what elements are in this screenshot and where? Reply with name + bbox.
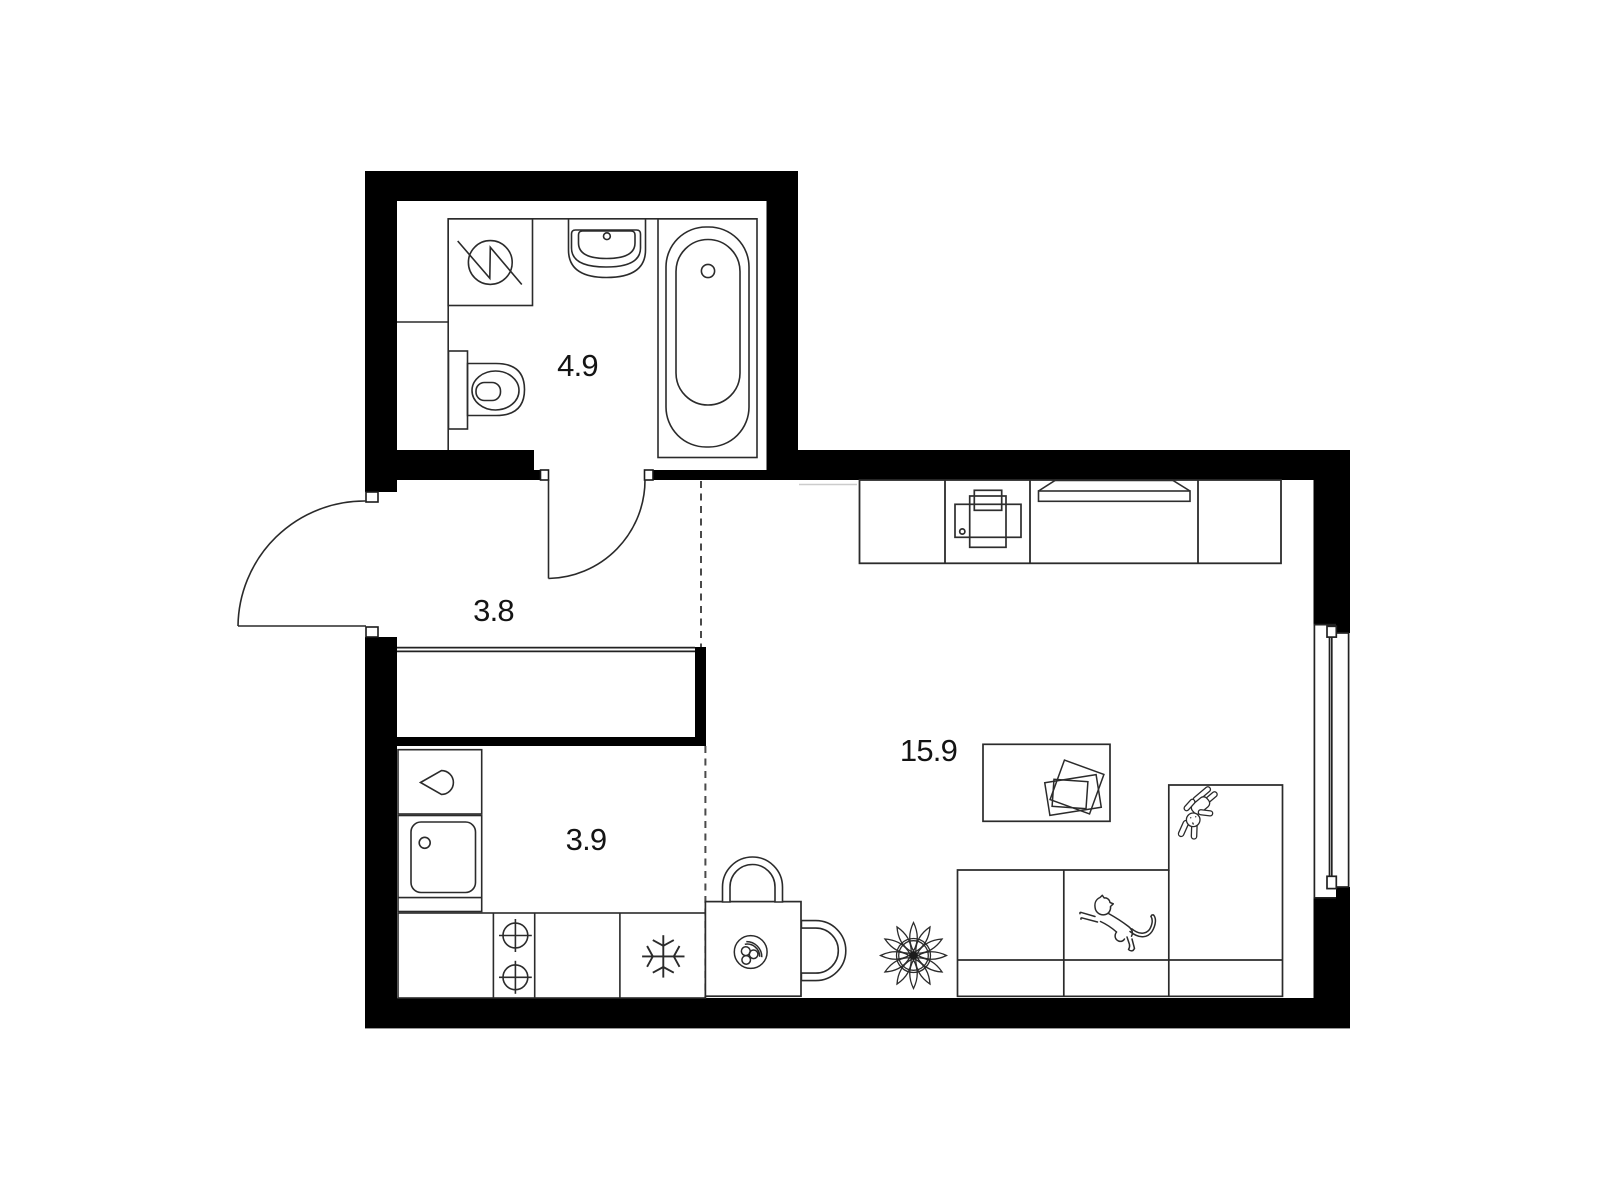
svg-text:3.9: 3.9: [566, 822, 607, 857]
svg-text:3.8: 3.8: [473, 593, 514, 628]
svg-text:15.9: 15.9: [900, 733, 957, 768]
svg-text:4.9: 4.9: [557, 348, 598, 383]
